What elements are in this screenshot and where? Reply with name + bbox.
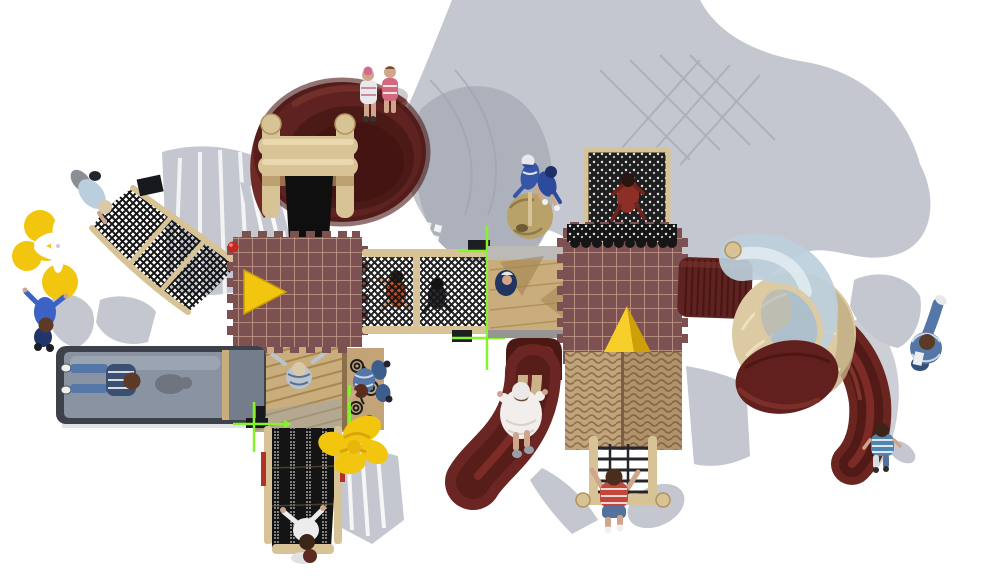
leg xyxy=(391,99,396,113)
leg xyxy=(513,432,519,451)
flower-center xyxy=(347,440,361,454)
roof-crenellation-part xyxy=(681,238,688,247)
bridge-center-beam xyxy=(413,249,420,334)
post-cap xyxy=(261,114,281,134)
hand xyxy=(542,389,548,395)
roof-crenellation-part xyxy=(306,231,315,238)
band-scallops-part xyxy=(592,238,602,248)
roof-crenellation-part xyxy=(227,294,234,303)
playground-scene xyxy=(0,0,1000,580)
shoe xyxy=(883,466,889,472)
roof-crenellation-part xyxy=(557,286,564,295)
band-scallops-part xyxy=(581,238,591,248)
roof-crenellation-part xyxy=(227,278,234,287)
roof-crenellation-part xyxy=(227,310,234,319)
band-scallops-part xyxy=(614,238,624,248)
post-knob xyxy=(725,242,741,258)
band-scallops-part xyxy=(625,238,635,248)
roof-crenellation-part xyxy=(258,231,267,238)
band-scallops-part xyxy=(667,238,677,248)
ghost-child-part xyxy=(180,377,192,389)
shoe xyxy=(34,343,42,351)
flower-center xyxy=(56,244,60,248)
dome-post xyxy=(528,192,532,226)
roof-crenellation-part xyxy=(290,346,299,353)
head xyxy=(502,275,512,285)
main-grid-roof xyxy=(557,222,688,364)
head xyxy=(606,469,623,486)
clamp xyxy=(256,406,265,420)
roller-highlight xyxy=(262,159,354,165)
cap xyxy=(364,67,373,76)
lace-band xyxy=(567,224,677,248)
roof-crenellation-part xyxy=(557,318,564,327)
post-cap xyxy=(335,114,355,134)
shoe xyxy=(61,386,71,394)
roof-crenellation-part xyxy=(290,231,299,238)
hand xyxy=(268,350,273,355)
panel-edge xyxy=(342,348,347,430)
tan-strip xyxy=(222,350,229,420)
playground-render xyxy=(0,0,1000,580)
band-scallops-part xyxy=(570,238,580,248)
roof-crenellation-part xyxy=(274,346,283,353)
shoe xyxy=(61,364,71,372)
shoe xyxy=(542,199,548,205)
roof-crenellation-part xyxy=(681,334,688,343)
roof-crenellation-part xyxy=(322,231,331,238)
shoe xyxy=(363,116,369,122)
thatch-right-shade xyxy=(624,352,682,450)
roof-crenellation-part xyxy=(274,231,283,238)
leg xyxy=(70,364,108,373)
bag xyxy=(89,171,101,181)
black-ramp xyxy=(285,176,333,240)
head xyxy=(299,534,315,550)
roof-crenellation-part xyxy=(681,318,688,327)
shoe xyxy=(46,344,54,352)
hand xyxy=(497,391,503,397)
roof-crenellation-part xyxy=(557,302,564,311)
roof-crenellation-part xyxy=(227,262,234,271)
shoe xyxy=(554,205,560,211)
shoe xyxy=(370,116,376,122)
roller-highlight xyxy=(262,139,354,145)
shoe xyxy=(524,446,534,454)
head xyxy=(545,166,557,178)
lime-strip-marker xyxy=(348,385,351,425)
red-ball xyxy=(228,242,239,253)
dome-hole xyxy=(516,224,528,232)
shoe xyxy=(384,361,391,368)
roof-crenellation-part xyxy=(352,231,360,238)
red-ball-highlight xyxy=(229,243,233,247)
leg xyxy=(70,384,108,393)
shoe xyxy=(617,525,624,532)
band-scallops-part xyxy=(647,238,657,248)
bar-end xyxy=(656,493,670,507)
leg xyxy=(605,517,611,528)
hand xyxy=(64,294,69,299)
roof-crenellation-part xyxy=(242,231,251,238)
hand xyxy=(23,288,28,293)
head xyxy=(303,549,317,563)
shoe xyxy=(512,450,522,458)
torso xyxy=(360,80,377,104)
shoe xyxy=(386,396,393,403)
head xyxy=(124,373,141,390)
roof-crenellation-part xyxy=(338,231,347,238)
bar-end xyxy=(576,493,590,507)
child-on-center-deck xyxy=(495,270,517,296)
leg xyxy=(524,430,530,448)
shoe xyxy=(873,467,879,473)
roof-crenellation-part xyxy=(557,270,564,279)
leg xyxy=(873,455,879,468)
roof-crenellation-part xyxy=(322,346,331,353)
band-scallops-part xyxy=(658,238,668,248)
clamp xyxy=(452,330,472,342)
head xyxy=(875,423,889,437)
rail-right xyxy=(648,436,657,504)
left-grid-roof xyxy=(227,231,368,353)
head xyxy=(919,334,935,350)
roof-crenellation-part xyxy=(306,346,315,353)
shoe xyxy=(605,527,612,534)
torso xyxy=(382,78,398,101)
roof-crenellation-part xyxy=(338,346,347,353)
roof-crenellation-part xyxy=(557,254,564,263)
thatch-divider xyxy=(621,352,624,450)
band-scallops-part xyxy=(636,238,646,248)
roof-crenellation-part xyxy=(227,326,234,335)
band-scallops-part xyxy=(603,238,613,248)
head xyxy=(39,318,54,333)
roof-crenellation-part xyxy=(557,238,564,247)
leg xyxy=(384,99,389,113)
rope-bridge xyxy=(362,249,490,334)
thatched-roof xyxy=(565,352,682,450)
top-climbing-net-panel xyxy=(586,150,668,232)
hand xyxy=(320,505,326,511)
head xyxy=(512,382,530,400)
head xyxy=(292,362,306,376)
bridge-mesh xyxy=(362,257,490,327)
red-grip xyxy=(261,452,266,486)
leg xyxy=(617,515,623,526)
hand xyxy=(280,507,286,513)
